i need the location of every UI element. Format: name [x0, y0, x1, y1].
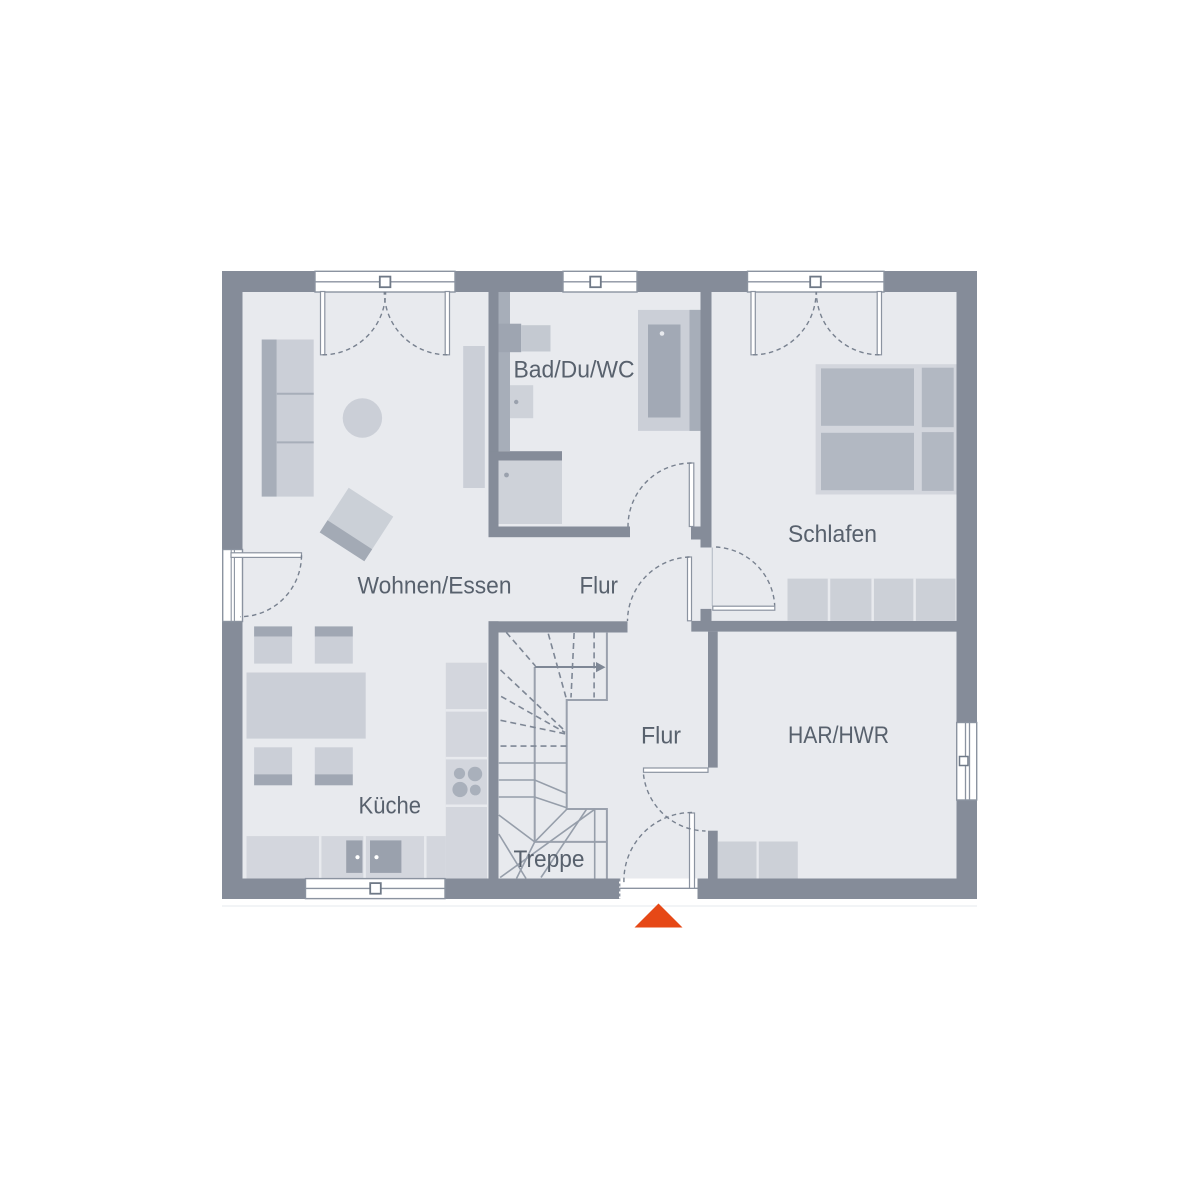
- svg-text:Treppe: Treppe: [514, 846, 585, 873]
- svg-text:Bad/Du/WC: Bad/Du/WC: [514, 357, 635, 384]
- svg-text:Schlafen: Schlafen: [788, 521, 877, 548]
- svg-text:Wohnen/Essen: Wohnen/Essen: [358, 573, 512, 600]
- svg-text:HAR/HWR: HAR/HWR: [788, 722, 889, 749]
- svg-text:Flur: Flur: [641, 723, 681, 750]
- svg-text:Flur: Flur: [580, 573, 619, 600]
- svg-text:Küche: Küche: [359, 793, 422, 820]
